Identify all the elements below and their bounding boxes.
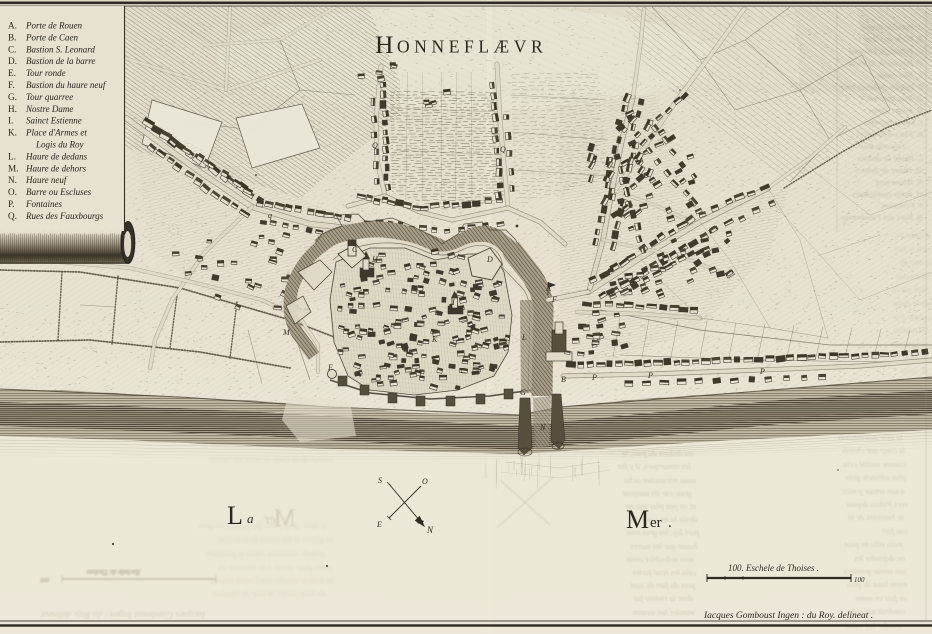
svg-text:vers Palais depuis: vers Palais depuis — [847, 500, 908, 509]
svg-text:M: M — [626, 505, 649, 534]
svg-text:C: C — [352, 245, 358, 254]
svg-text:M.: M. — [8, 163, 18, 173]
svg-text:E: E — [327, 363, 333, 372]
svg-text:petits pour seruir a la descen: petits pour seruir a la descente en — [218, 563, 333, 572]
svg-text:Q. Rues des Fauxbourgs: Q. Rues des Fauxbourgs — [841, 213, 923, 222]
svg-text:Bastion de la barre: Bastion de la barre — [26, 56, 95, 66]
svg-text:a: a — [247, 511, 254, 526]
svg-text:er: er — [650, 515, 662, 531]
svg-text:H. Nostre Dame: H. Nostre Dame — [868, 106, 924, 115]
svg-text:O.: O. — [8, 187, 17, 197]
svg-text:G: G — [520, 388, 526, 397]
svg-text:ou defendre les: ou defendre les — [854, 554, 905, 563]
svg-text:M: M — [282, 328, 291, 337]
svg-text:haute que les autres: haute que les autres — [630, 542, 697, 551]
svg-text:A.: A. — [8, 21, 17, 31]
svg-text:Tour ronde: Tour ronde — [26, 68, 66, 78]
svg-text:Bastion S. Leonard: Bastion S. Leonard — [26, 44, 95, 54]
svg-text:Q: Q — [500, 145, 506, 154]
svg-text:Tour quarree: Tour quarree — [26, 92, 73, 102]
svg-text:D.: D. — [8, 56, 17, 66]
svg-text:Fontaines: Fontaines — [25, 199, 62, 209]
svg-text:N.: N. — [8, 175, 17, 185]
svg-text:Iacques Gomboust Ingen : du Ro: Iacques Gomboust Ingen : du Roy. delinea… — [40, 609, 206, 619]
svg-text:O: O — [422, 477, 428, 486]
svg-text:Logis du Roy: Logis du Roy — [35, 140, 84, 150]
svg-text:K: K — [431, 335, 438, 344]
svg-text:du banc contre la tour de l'es: du banc contre la tour de l'escluse — [211, 589, 326, 598]
svg-text:Iacques Gomboust Ingen : du Ro: Iacques Gomboust Ingen : du Roy. delinea… — [703, 611, 873, 621]
svg-text:tant que la: tant que la — [892, 285, 927, 294]
svg-text:P: P — [591, 373, 597, 382]
svg-text:N: N — [426, 525, 434, 535]
svg-text:pres du fort ils sont: pres du fort ils sont — [629, 581, 696, 590]
svg-text:P: P — [759, 367, 765, 376]
svg-text:les navires: les navires — [893, 326, 928, 335]
svg-text:nous retrancher ocho: nous retrancher ocho — [624, 476, 696, 485]
svg-text:comme moitié cela: comme moitié cela — [843, 460, 906, 469]
svg-text:se battirent de la: se battirent de la — [848, 513, 904, 522]
svg-text:D: D — [486, 255, 493, 264]
svg-text:S: S — [378, 476, 382, 485]
svg-text:.: . — [668, 515, 672, 531]
svg-text:wonder het westen: wonder het westen — [633, 608, 695, 617]
svg-text:er: er — [263, 512, 276, 528]
svg-text:sont redoublez ceste: sont redoublez ceste — [626, 555, 694, 564]
svg-text:cela les rend fortes: cela les rend fortes — [632, 568, 696, 577]
svg-text:plus adroicts gens: plus adroicts gens — [845, 473, 907, 482]
svg-text:F.: F. — [8, 80, 15, 90]
svg-text:E.: E. — [8, 68, 16, 78]
svg-text:et pour les: et pour les — [894, 231, 929, 240]
svg-text:Rues des Fauxbourgs: Rues des Fauxbourgs — [25, 211, 104, 221]
svg-text:a son retour y mist: a son retour y mist — [842, 487, 905, 496]
svg-text:B.: B. — [8, 32, 16, 42]
svg-text:L: L — [227, 501, 243, 530]
svg-text:O. Barre ou Escluses: O. Barre ou Escluses — [852, 190, 923, 199]
svg-text:Porte de Caen: Porte de Caen — [25, 32, 78, 42]
svg-text:P: P — [647, 371, 653, 380]
svg-text:le sieur de la place fist pass: le sieur de la place fist passer les gen… — [198, 522, 327, 531]
svg-text:nids le fort: nids le fort — [894, 245, 930, 254]
svg-text:I: I — [451, 298, 455, 307]
svg-text:du costé: du costé — [901, 367, 928, 376]
svg-text:gros: car ils auoyent: gros: car ils auoyent — [622, 489, 692, 498]
svg-text:L. Haure de dedans: L. Haure de dedans — [857, 154, 924, 163]
svg-text:L: L — [521, 333, 527, 342]
svg-text:Porte de Rouen: Porte de Rouen — [25, 21, 82, 31]
svg-text:grands vaisseaux ronds et plus: grands vaisseaux ronds et plusieurs — [205, 549, 325, 558]
svg-text:Q.: Q. — [8, 211, 17, 221]
svg-text:Eschele de Thoises: Eschele de Thoises — [86, 568, 141, 576]
svg-text:la rade et mouillerent l'ancre: la rade et mouillerent l'ancre aupres — [211, 576, 333, 585]
svg-text:100: 100 — [854, 576, 865, 584]
svg-text:grande mer: grande mer — [889, 340, 928, 349]
svg-text:Haure de dehors: Haure de dehors — [25, 163, 87, 173]
svg-text:ONNEFLÆVR: ONNEFLÆVR — [397, 37, 547, 57]
svg-text:N. Haure neuf: N. Haure neuf — [874, 178, 924, 187]
svg-text:vn fois vn autre: vn fois vn autre — [855, 594, 907, 603]
svg-text:M. Haure de dehors: M. Haure de dehors — [856, 166, 924, 175]
svg-text:Place d'Armes et: Place d'Armes et — [25, 128, 87, 138]
svg-text:F: F — [551, 295, 557, 304]
svg-text:G.: G. — [8, 92, 17, 102]
svg-text:Sainct Estienne: Sainct Estienne — [26, 116, 82, 126]
svg-text:son venue greniers: son venue greniers — [844, 567, 907, 576]
svg-text:dont la riuiere fut: dont la riuiere fut — [633, 594, 693, 603]
svg-text:L.: L. — [8, 151, 16, 161]
svg-text:les remarques, il y fist: les remarques, il y fist — [617, 462, 691, 471]
svg-text:I.: I. — [8, 116, 13, 126]
svg-text:de guerre et les vivres dedans: de guerre et les vivres dedans trois — [218, 535, 334, 544]
svg-text:H.: H. — [8, 104, 17, 114]
svg-text:Barre ou Escluses: Barre ou Escluses — [26, 187, 92, 197]
svg-text:C.: C. — [8, 44, 16, 54]
svg-text:mais ville ne peut: mais ville ne peut — [843, 540, 903, 549]
svg-text:E: E — [376, 520, 382, 529]
svg-text:q: q — [268, 211, 272, 220]
svg-text:Haure neuf: Haure neuf — [25, 175, 68, 185]
svg-text:M: M — [274, 505, 296, 532]
svg-text:son fort: son fort — [881, 527, 908, 536]
svg-text:B: B — [561, 375, 566, 384]
svg-text:Bastion du haure neuf: Bastion du haure neuf — [26, 80, 107, 90]
svg-text:Q: Q — [372, 141, 378, 150]
svg-text:H: H — [375, 30, 394, 59]
svg-text:Nostre Dame: Nostre Dame — [25, 104, 73, 114]
svg-text:P.: P. — [8, 199, 14, 209]
svg-text:porte passe: porte passe — [892, 299, 931, 308]
svg-text:G. Tour quarree: G. Tour quarree — [869, 94, 923, 103]
svg-text:100. Eschele de Thoises .: 100. Eschele de Thoises . — [728, 563, 819, 573]
svg-text:100: 100 — [40, 578, 49, 584]
svg-text:N: N — [539, 423, 546, 432]
svg-text:K.: K. — [8, 128, 17, 138]
svg-text:Logis du Roy: Logis du Roy — [861, 142, 906, 151]
svg-text:Haure de dedans: Haure de dedans — [25, 151, 88, 161]
